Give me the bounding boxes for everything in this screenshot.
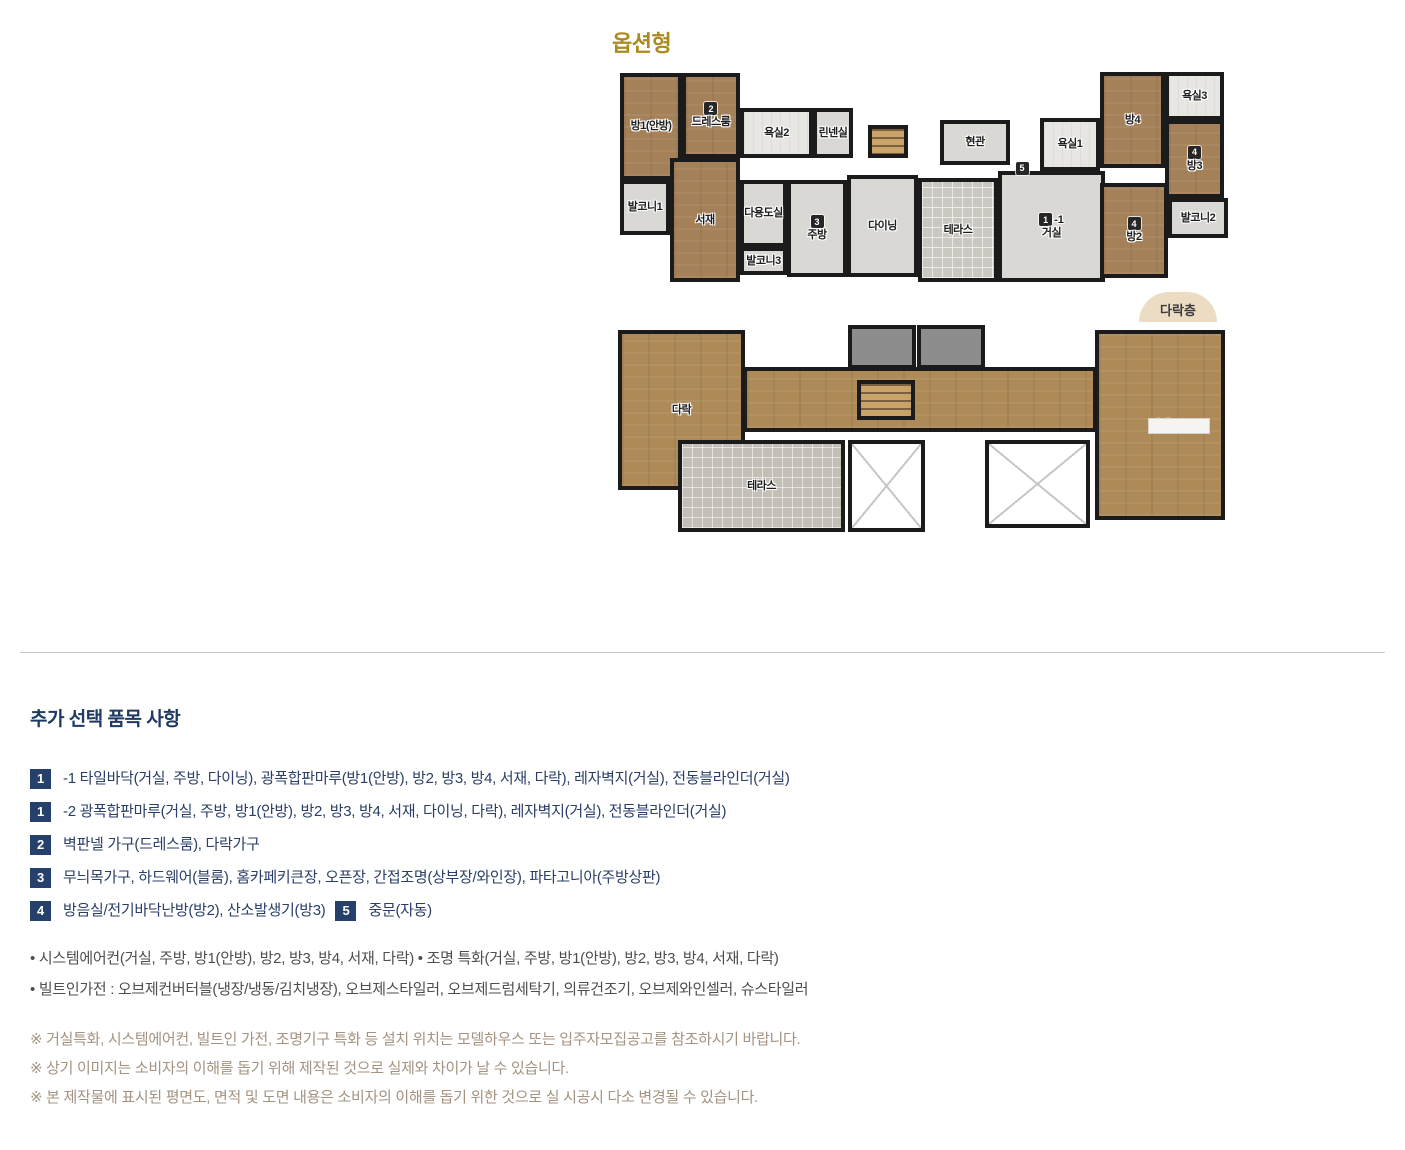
room-linen-label: 린넨실 bbox=[819, 127, 848, 139]
room-utility: 다용도실 bbox=[740, 180, 787, 247]
room-dining: 다이닝 bbox=[847, 175, 918, 277]
room-kitchen: 3주방 bbox=[787, 180, 847, 277]
plan-badge-number: 3 bbox=[811, 215, 824, 228]
option-item-text: 방음실/전기바닥난방(방2), 산소발생기(방3) bbox=[63, 901, 325, 921]
plan-badge-number: 4 bbox=[1188, 146, 1201, 159]
room-entry-label: 현관 bbox=[965, 136, 984, 148]
room-bang1-master-label: 방1(안방) bbox=[631, 120, 672, 132]
notes-list: ※ 거실특화, 시스템에어컨, 빌트인 가전, 조명기구 특화 등 설치 위치는… bbox=[30, 1030, 1375, 1107]
option-item-row: 1-2 광폭합판마루(거실, 주방, 방1(안방), 방2, 방3, 방4, 서… bbox=[30, 802, 1375, 822]
option-badge-5: 5 bbox=[335, 901, 356, 921]
section-divider bbox=[20, 652, 1385, 653]
room-terrace-lower: 테라스 bbox=[678, 440, 845, 532]
room-terrace-lower-label: 테라스 bbox=[747, 480, 776, 492]
room-bang4-label: 방4 bbox=[1125, 114, 1140, 126]
bullet-list: 시스템에어컨(거실, 주방, 방1(안방), 방2, 방3, 방4, 서재, 다… bbox=[30, 949, 1375, 1000]
room-balcony1-label: 발코니1 bbox=[628, 201, 662, 213]
room-bath2: 욕실2 bbox=[740, 108, 813, 158]
room-balcony2-label: 발코니2 bbox=[1181, 212, 1215, 224]
room-dressroom: 2드레스룸 bbox=[682, 73, 740, 158]
room-grayblock-1 bbox=[848, 325, 916, 369]
marker-badge-5: 5 bbox=[1012, 159, 1032, 177]
attic-floor-tag: 다락층 bbox=[1139, 292, 1217, 322]
room-bath1-label: 욕실1 bbox=[1058, 138, 1083, 150]
option-item-text: -1 타일바닥(거실, 주방, 다이닝), 광폭합판마루(방1(안방), 방2,… bbox=[63, 769, 790, 789]
note-line: ※ 상기 이미지는 소비자의 이해를 돕기 위해 제작된 것으로 실제와 차이가… bbox=[30, 1059, 1375, 1078]
option-item-row: 2벽판넬 가구(드레스룸), 다락가구 bbox=[30, 835, 1375, 855]
plan-badge-3: 3 bbox=[811, 215, 824, 228]
room-living: 1-1거실 bbox=[998, 171, 1105, 282]
option-item-row: 3무늬목가구, 하드웨어(블룸), 홈카페키큰장, 오픈장, 간접조명(상부장/… bbox=[30, 868, 1375, 888]
option-item-row: 4방음실/전기바닥난방(방2), 산소발생기(방3)5중문(자동) bbox=[30, 901, 1375, 921]
page-title: 옵션형 bbox=[612, 26, 671, 58]
room-study-label: 서재 bbox=[695, 214, 714, 226]
room-kitchen-label: 주방 bbox=[807, 229, 826, 241]
room-living-label: 거실 bbox=[1042, 227, 1061, 239]
plan-badge-number: 2 bbox=[704, 102, 717, 115]
room-bang3: 4방3 bbox=[1165, 120, 1224, 198]
option-item-text: 무늬목가구, 하드웨어(블룸), 홈카페키큰장, 오픈장, 간접조명(상부장/와… bbox=[63, 868, 660, 888]
room-bang2: 4방2 bbox=[1100, 183, 1168, 278]
room-balcony3-label: 발코니3 bbox=[746, 255, 780, 267]
floorplan-upper: 방1(안방)2드레스룸욕실2린넨실현관욕실1방4욕실34방3발코니1서재다용도실… bbox=[617, 67, 1228, 285]
plan-badge-suffix: -1 bbox=[1054, 214, 1064, 226]
options-section: 추가 선택 품목 사항 1-1 타일바닥(거실, 주방, 다이닝), 광폭합판마… bbox=[30, 704, 1375, 1117]
room-bath1: 욕실1 bbox=[1040, 118, 1100, 171]
room-stairs-lower bbox=[857, 380, 915, 420]
plan-badge-number: 4 bbox=[1128, 217, 1141, 230]
option-badge-1: 1 bbox=[30, 769, 51, 789]
note-line: ※ 본 제작물에 표시된 평면도, 면적 및 도면 내용은 소비자의 이해를 돕… bbox=[30, 1088, 1375, 1107]
room-study: 서재 bbox=[670, 158, 740, 282]
room-corridor bbox=[743, 367, 1097, 432]
room-void-left bbox=[848, 440, 925, 532]
option-badge-1: 1 bbox=[30, 802, 51, 822]
room-bang3-label: 방3 bbox=[1187, 160, 1202, 172]
floorplan-lower: 다락다락테라스 bbox=[617, 322, 1228, 537]
bullet-line: 빌트인가전 : 오브제컨버터블(냉장/냉동/김치냉장), 오브제스타일러, 오브… bbox=[30, 980, 1375, 1000]
room-bath2-label: 욕실2 bbox=[764, 127, 789, 139]
plan-badge-number: 1 bbox=[1039, 213, 1052, 226]
room-grayblock-2 bbox=[917, 325, 985, 369]
option-item-row: 1-1 타일바닥(거실, 주방, 다이닝), 광폭합판마루(방1(안방), 방2… bbox=[30, 769, 1375, 789]
plan-badge-2: 2 bbox=[704, 102, 717, 115]
bullet-line: 시스템에어컨(거실, 주방, 방1(안방), 방2, 방3, 방4, 서재, 다… bbox=[30, 949, 1375, 969]
page: 옵션형 방1(안방)2드레스룸욕실2린넨실현관욕실1방4욕실34방3발코니1서재… bbox=[0, 0, 1405, 1150]
plan-badge-number: 5 bbox=[1016, 162, 1029, 175]
section-heading: 추가 선택 품목 사항 bbox=[30, 704, 1375, 731]
note-line: ※ 거실특화, 시스템에어컨, 빌트인 가전, 조명기구 특화 등 설치 위치는… bbox=[30, 1030, 1375, 1049]
room-entry: 현관 bbox=[940, 120, 1010, 165]
room-terrace-upper: 테라스 bbox=[918, 178, 998, 282]
room-balcony2: 발코니2 bbox=[1168, 198, 1228, 238]
room-linen: 린넨실 bbox=[813, 108, 853, 158]
option-item-text: 중문(자동) bbox=[368, 901, 431, 921]
room-dressroom-label: 드레스룸 bbox=[692, 116, 730, 128]
room-bath3: 욕실3 bbox=[1165, 72, 1224, 120]
room-bang4: 방4 bbox=[1100, 72, 1165, 168]
room-balcony3: 발코니3 bbox=[740, 247, 787, 275]
plan-badge-4: 4 bbox=[1188, 146, 1201, 159]
option-badge-2: 2 bbox=[30, 835, 51, 855]
room-bang2-label: 방2 bbox=[1126, 231, 1141, 243]
option-item-text: -2 광폭합판마루(거실, 주방, 방1(안방), 방2, 방3, 방4, 서재… bbox=[63, 802, 726, 822]
plan-badge-1: 1-1 bbox=[1039, 213, 1064, 226]
room-attic-left-label: 다락 bbox=[672, 404, 691, 416]
room-dining-label: 다이닝 bbox=[868, 220, 897, 232]
room-stairs-upper bbox=[868, 125, 908, 158]
option-item-text: 벽판넬 가구(드레스룸), 다락가구 bbox=[63, 835, 260, 855]
room-terrace-upper-label: 테라스 bbox=[944, 224, 973, 236]
option-badge-3: 3 bbox=[30, 868, 51, 888]
option-items-list: 1-1 타일바닥(거실, 주방, 다이닝), 광폭합판마루(방1(안방), 방2… bbox=[30, 769, 1375, 921]
room-attic-slot bbox=[1148, 418, 1210, 434]
option-badge-4: 4 bbox=[30, 901, 51, 921]
room-void-right bbox=[985, 440, 1090, 528]
room-balcony1: 발코니1 bbox=[620, 180, 670, 235]
room-utility-label: 다용도실 bbox=[744, 207, 782, 219]
plan-badge-5: 5 bbox=[1016, 162, 1029, 175]
plan-badge-4: 4 bbox=[1128, 217, 1141, 230]
room-bath3-label: 욕실3 bbox=[1182, 90, 1207, 102]
